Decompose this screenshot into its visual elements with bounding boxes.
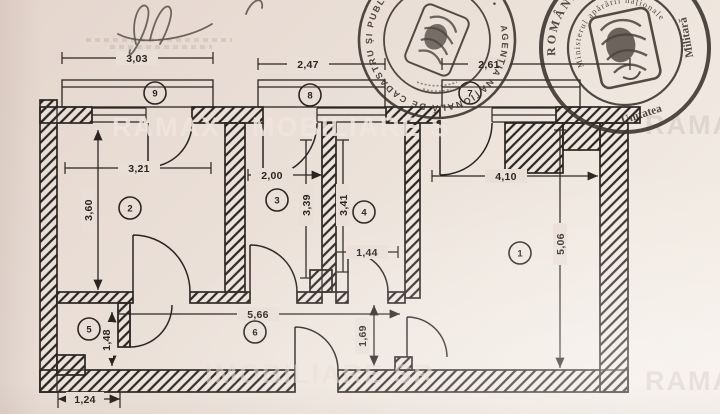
room-2-badge: 2 <box>119 197 141 219</box>
dim-room3-width-value: 2,00 <box>261 170 283 182</box>
dim-room4-width-value: 1,44 <box>356 247 378 259</box>
dim-balcony8: 2,47 <box>287 57 329 71</box>
wall-room4-room1 <box>405 123 420 298</box>
floor-plan-drawing: 3,03 2,47 2,61 3,21 2,00 4,10 3,60 3,39 <box>0 0 720 414</box>
dim-balcony8-value: 2,47 <box>297 59 319 71</box>
watermark-bottom-right: RAMAX F <box>645 366 720 396</box>
signature-stroke-4 <box>246 0 262 14</box>
room-1-badge: 1 <box>509 242 531 264</box>
hall-wall-seg-1 <box>57 292 133 303</box>
shaft-block <box>310 270 332 292</box>
room-6-number: 6 <box>252 328 257 339</box>
door-hall-room5 <box>130 305 172 347</box>
room-5-number: 5 <box>86 325 92 336</box>
outer-walls <box>40 100 640 392</box>
room-8-badge: 8 <box>299 84 321 106</box>
dim-room3-height-value: 3,39 <box>301 194 313 216</box>
dim-room5-height-value: 1,48 <box>101 329 113 351</box>
wall-room2-room3 <box>225 123 245 292</box>
dim-room2-width: 3,21 <box>118 161 160 175</box>
dim-hall-length-value: 5,66 <box>247 309 269 321</box>
room-1-number: 1 <box>517 249 523 260</box>
cadastre-emblem-blob <box>421 20 452 53</box>
room-2-number: 2 <box>127 204 132 215</box>
hall-wall-seg-2 <box>190 292 250 303</box>
dim-room1-width-value: 4,10 <box>495 171 517 183</box>
room-9-badge: 9 <box>144 82 166 104</box>
dim-room5-width: 1,24 <box>66 392 104 406</box>
top-wall-seg-1 <box>40 107 92 123</box>
scanned-floor-plan-photo: 3,03 2,47 2,61 3,21 2,00 4,10 3,60 3,39 <box>0 0 720 414</box>
door-hall-room1 <box>407 317 447 357</box>
dim-room5-width-value: 1,24 <box>74 394 96 406</box>
window-room1 <box>492 108 556 122</box>
room-5-badge: 5 <box>78 318 100 340</box>
dim-hall-length: 5,66 <box>237 307 279 321</box>
doors <box>130 123 492 370</box>
dim-hall-height-value: 1,69 <box>357 325 369 347</box>
dim-room5-height: 1,48 <box>99 322 113 358</box>
military-stamp-emblem <box>588 7 662 90</box>
dim-room1-width: 4,10 <box>485 169 527 183</box>
room-4-badge: 4 <box>353 201 375 223</box>
dim-room2-width-value: 3,21 <box>128 163 150 175</box>
door-hall-room3 <box>250 245 297 292</box>
dim-room4-height-value: 3,41 <box>338 194 350 216</box>
room-9-number: 9 <box>152 89 157 100</box>
hall-wall-seg-5 <box>388 292 405 303</box>
watermark-top-left: RAMAX <box>112 112 221 142</box>
dim-room1-height: 5,06 <box>553 223 567 265</box>
dimension-lines <box>58 52 630 408</box>
wall-room3-room4 <box>322 123 336 292</box>
dim-room1-height-value: 5,06 <box>555 233 567 255</box>
right-wall <box>600 123 628 392</box>
room-3-badge: 3 <box>266 189 288 211</box>
military-stamp-unit-word2: Militară <box>677 16 696 59</box>
cadastre-stamp-emblem <box>403 2 471 91</box>
dim-balcony9: 3,03 <box>116 51 158 65</box>
watermark-bottom-mid: IMOBILIARE SR <box>205 359 435 389</box>
room-3-number: 3 <box>274 196 279 207</box>
dim-hall-height: 1,69 <box>355 318 369 354</box>
bottom-left-step <box>57 355 85 375</box>
dim-room3-height: 3,39 <box>299 184 313 226</box>
room-4-number: 4 <box>361 208 367 219</box>
hall-wall-seg-4 <box>336 292 348 303</box>
hall-wall-seg-3 <box>297 292 322 303</box>
dim-room4-width: 1,44 <box>346 245 388 259</box>
room-8-number: 8 <box>307 91 312 102</box>
dim-room3-width: 2,00 <box>251 168 293 182</box>
signature <box>86 0 262 54</box>
left-wall <box>40 100 57 392</box>
dim-room2-height: 3,60 <box>81 189 95 231</box>
wall-room5-hall <box>118 303 130 347</box>
room-6-badge: 6 <box>244 321 266 343</box>
dim-room2-height-value: 3,60 <box>83 199 95 221</box>
dim-room4-height: 3,41 <box>336 184 350 226</box>
door-hall-room2 <box>133 235 190 292</box>
balcony-9-outline <box>62 80 213 107</box>
